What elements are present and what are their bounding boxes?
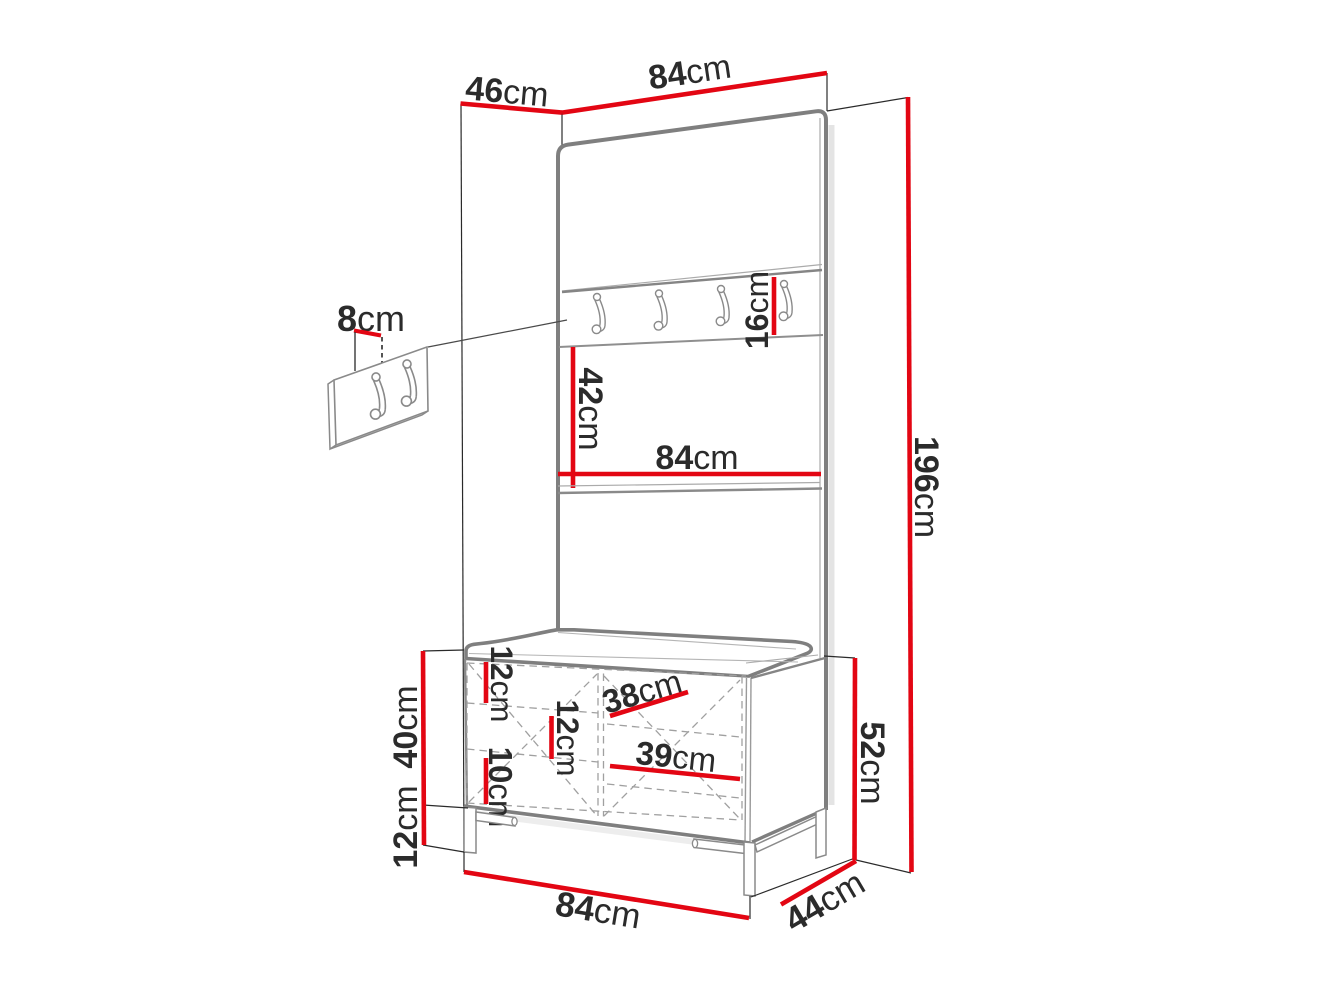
svg-text:40cm: 40cm xyxy=(387,685,425,768)
svg-text:46cm: 46cm xyxy=(464,69,550,114)
svg-text:84cm: 84cm xyxy=(655,439,738,477)
svg-text:16cm: 16cm xyxy=(739,271,775,349)
svg-text:12cm: 12cm xyxy=(550,699,586,776)
svg-text:196cm: 196cm xyxy=(907,436,945,538)
svg-text:12cm: 12cm xyxy=(387,785,425,868)
svg-text:42cm: 42cm xyxy=(571,367,609,450)
svg-text:52cm: 52cm xyxy=(853,721,891,804)
svg-text:12cm: 12cm xyxy=(484,645,520,722)
